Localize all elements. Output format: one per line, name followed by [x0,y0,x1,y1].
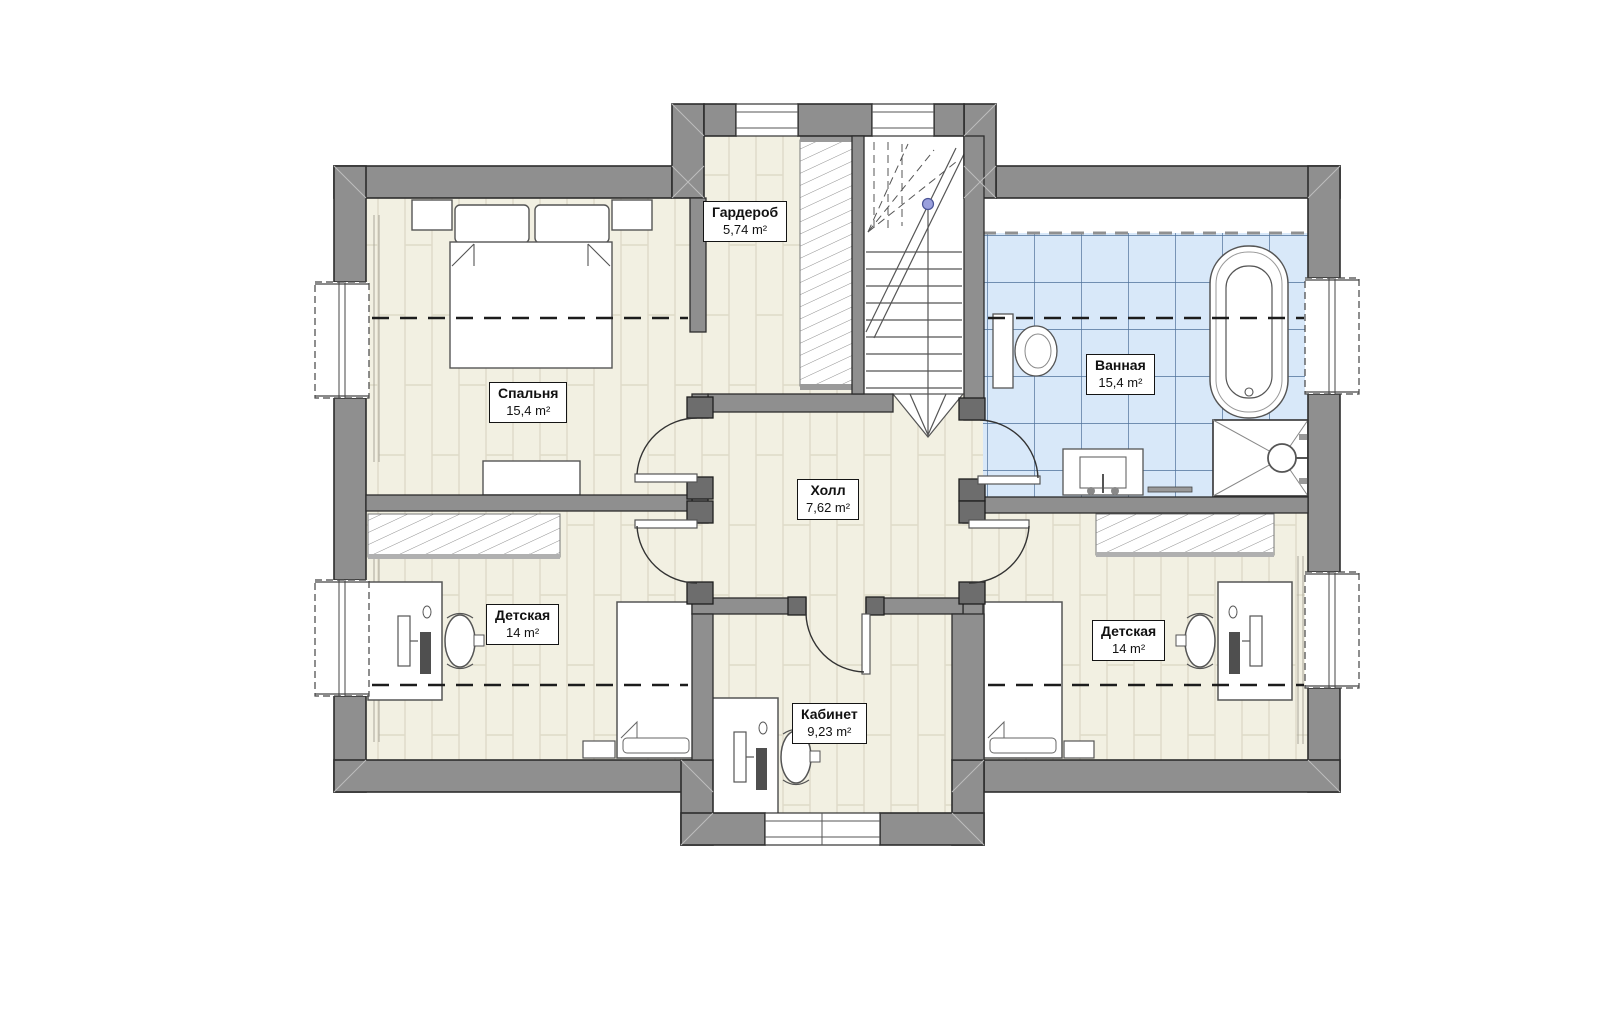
room-label-kids-right: Детская 14 m² [1092,620,1165,661]
room-label-bedroom: Спальня 15,4 m² [489,382,567,423]
nightstand [583,741,615,758]
towel-rail [1148,487,1192,492]
window-left-2 [315,580,369,696]
pillow [455,205,529,243]
room-area: 15,4 m² [498,403,558,419]
closet-kids-right [1096,514,1274,557]
room-label-wardrobe: Гардероб 5,74 m² [703,201,787,242]
window-right-1 [1305,278,1359,394]
nightstand [412,200,452,230]
room-name: Кабинет [801,706,858,724]
closet-kids-left [368,514,560,559]
stairwell-floor [864,136,964,394]
room-name: Ванная [1095,357,1146,375]
pillow [535,205,609,243]
nightstand [612,200,652,230]
dresser [483,461,580,495]
room-name: Холл [806,482,850,500]
floor-plan-canvas: Гардероб 5,74 m² Спальня 15,4 m² Ванная … [0,0,1600,1024]
room-label-hall: Холл 7,62 m² [797,479,859,520]
room-name: Детская [495,607,550,625]
nightstand [1064,741,1094,758]
room-name: Детская [1101,623,1156,641]
stair-start-marker [923,199,934,210]
room-label-office: Кабинет 9,23 m² [792,703,867,744]
window-bottom [765,813,880,845]
room-area: 15,4 m² [1095,375,1146,391]
room-label-bathroom: Ванная 15,4 m² [1086,354,1155,395]
bathroom-sloped-strip [983,198,1308,233]
window-top-1 [736,104,798,136]
shower-cabin [1213,420,1308,496]
room-name: Гардероб [712,204,778,222]
window-right-2 [1305,572,1359,688]
window-top-2 [872,104,934,136]
bathtub [1210,246,1288,418]
wardrobe-shelving [800,136,852,390]
room-area: 14 m² [1101,641,1156,657]
room-area: 9,23 m² [801,724,858,740]
room-area: 5,74 m² [712,222,778,238]
room-name: Спальня [498,385,558,403]
washbasin [1063,449,1143,495]
single-bed-left [617,602,695,758]
window-left-1 [315,282,369,398]
room-area: 7,62 m² [806,500,850,516]
single-bed-right [984,602,1062,758]
room-area: 14 m² [495,625,550,641]
room-label-kids-left: Детская 14 m² [486,604,559,645]
